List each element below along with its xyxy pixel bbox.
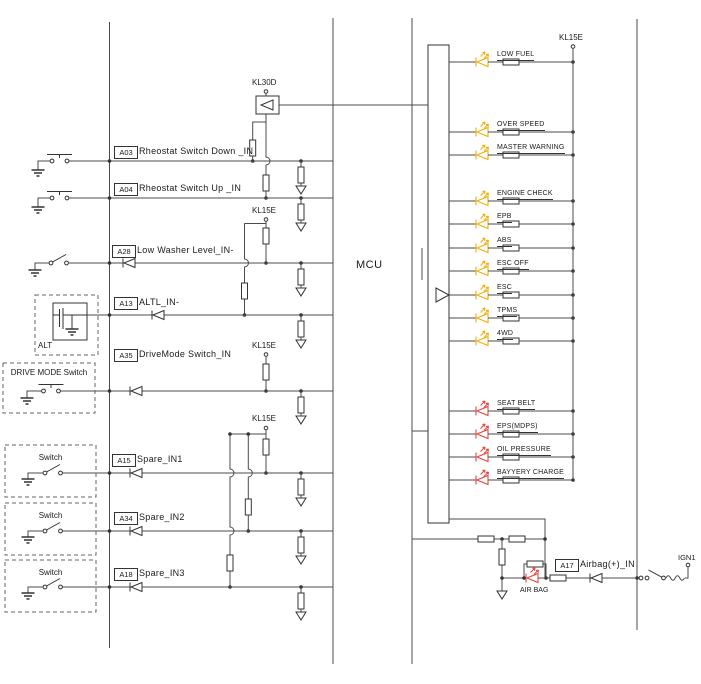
pushbutton-icon — [47, 155, 72, 163]
earth-ground-icon — [29, 270, 42, 276]
resistor — [227, 555, 233, 571]
resistor — [527, 561, 543, 567]
led-icon — [476, 191, 489, 206]
pin-box-a15: A15 — [112, 454, 136, 467]
resistor — [263, 439, 269, 455]
earth-ground-icon — [32, 170, 45, 176]
diode-icon — [123, 259, 135, 268]
ground-arrow-icon — [296, 340, 306, 348]
ign1-tail — [639, 563, 690, 580]
led-icon — [476, 331, 489, 346]
resistor — [298, 269, 304, 285]
pulldowns — [296, 159, 306, 620]
switch-blade-icon — [649, 570, 662, 577]
kl30d-label: KL30D — [252, 78, 276, 87]
toggle-switch-icon — [49, 255, 68, 265]
washer-level-switch — [29, 255, 69, 277]
led-icon — [476, 470, 489, 485]
led-icon — [476, 261, 489, 276]
led-icon — [476, 401, 489, 416]
kl15e-pullup-1 — [242, 218, 270, 317]
pin-box-a34: A34 — [114, 512, 138, 525]
led-icon — [476, 214, 489, 229]
ground-arrow-icon — [296, 556, 306, 564]
pin-label-a15: Spare_IN1 — [137, 453, 183, 466]
schematic-page: MCU KL30D KL15E KL15E KL15E KL15E IGN1 A… — [0, 0, 701, 684]
resistor — [298, 167, 304, 183]
led-icon — [476, 52, 489, 67]
earth-ground-icon — [22, 479, 35, 485]
input-wires — [61, 161, 334, 587]
led-icon — [476, 145, 489, 160]
pin-label-a04: Rheostat Switch Up _IN — [139, 182, 241, 195]
kl30d-terminal — [264, 90, 268, 94]
resistor — [263, 228, 269, 244]
indicator-label: 4WD — [497, 329, 513, 340]
kl15e-pullup-2 — [263, 353, 269, 393]
indicator-label: ESC — [497, 283, 512, 294]
pushbutton-icon — [39, 385, 64, 393]
ground-arrow-icon — [296, 223, 306, 231]
diode-icon — [130, 387, 142, 396]
indicator-label: BAYYERY CHARGE — [497, 468, 564, 479]
resistor — [499, 549, 505, 565]
toggle-switch-icon — [43, 579, 62, 589]
led-icon — [476, 285, 489, 300]
kl30d-circuit — [250, 90, 428, 200]
spare-switch-label: Switch — [5, 511, 96, 520]
diode-icon — [130, 527, 142, 536]
pin-label-a35: DriveMode Switch_IN — [139, 348, 231, 361]
indicator-label: ESC OFF — [497, 259, 529, 270]
drive-mode-label: DRIVE MODE Switch — [4, 368, 94, 377]
indicator-label: EPS(MDPS) — [497, 422, 538, 433]
spare-switch-label: Switch — [5, 453, 96, 462]
pin-box-a28: A28 — [112, 245, 136, 258]
earth-ground-icon — [22, 537, 35, 543]
resistor — [298, 537, 304, 553]
indicator-label: MASTER WARNING — [497, 143, 565, 154]
indicator-label: OVER SPEED — [497, 120, 545, 131]
resistor — [550, 575, 566, 581]
diode-icon — [590, 574, 602, 583]
resistor — [242, 283, 248, 299]
toggle-switch-icon — [43, 523, 62, 533]
pin-box-a13: A13 — [114, 297, 138, 310]
toggle-switch-icon — [43, 465, 62, 475]
indicator-label: SEAT BELT — [497, 399, 535, 410]
led-icon — [476, 238, 489, 253]
resistor — [298, 321, 304, 337]
kl15e-pullup-3 — [227, 426, 269, 589]
indicator-label: TPMS — [497, 306, 517, 317]
led-icon — [476, 424, 489, 439]
kl15e-label: KL15E — [252, 206, 276, 215]
pin-label-a03: Rheostat Switch Down _IN — [139, 145, 253, 158]
pin-label-a17: Airbag(+)_IN — [580, 558, 635, 571]
led-icon — [476, 122, 489, 137]
pin-label-a34: Spare_IN2 — [139, 511, 185, 524]
indicator-label: ABS — [497, 236, 512, 247]
resistor — [509, 536, 525, 542]
ground-arrow-icon — [296, 498, 306, 506]
pin-box-a18: A18 — [114, 568, 138, 581]
diode-icon — [152, 311, 164, 320]
resistor — [298, 593, 304, 609]
pin-box-a35: A35 — [114, 349, 138, 362]
wiring-schematic — [0, 0, 701, 684]
ground-arrow-icon — [296, 416, 306, 424]
led-icon — [476, 308, 489, 323]
indicator-label: EPB — [497, 212, 512, 223]
led-icon — [476, 447, 489, 462]
rheostat-down-switch — [32, 155, 73, 177]
resistor — [478, 536, 494, 542]
resistor — [245, 499, 251, 515]
pin-label-a28: Low Washer Level_IN- — [137, 244, 234, 257]
diode-icon — [130, 583, 142, 592]
airbag-led-icon — [526, 568, 539, 583]
resistor — [298, 479, 304, 495]
kl15e-terminal — [264, 218, 268, 222]
ign1-terminal — [686, 563, 690, 567]
spare-switch-label: Switch — [5, 568, 96, 577]
pin-label-a18: Spare_IN3 — [139, 567, 185, 580]
resistor — [298, 204, 304, 220]
pin-box-a03: A03 — [114, 146, 138, 159]
kl15e-terminal — [264, 426, 268, 430]
airbag-lamp-label: AIR BAG — [520, 586, 548, 595]
kl15e-terminal — [264, 353, 268, 357]
resistor — [298, 397, 304, 413]
kl15e-label: KL15E — [559, 33, 583, 42]
resistor — [263, 175, 269, 191]
resistor — [263, 364, 269, 380]
kl15e-label: KL15E — [252, 341, 276, 350]
ground-arrow-icon — [296, 288, 306, 296]
rheostat-up-switch — [32, 192, 73, 214]
mcu-driver-block — [412, 45, 449, 523]
pushbutton-icon — [47, 192, 72, 200]
ground-arrow-icon — [497, 591, 507, 599]
diode-icon — [130, 469, 142, 478]
alt-label: ALT — [38, 341, 52, 350]
kl15e-label: KL15E — [252, 414, 276, 423]
pin-box-a17: A17 — [555, 559, 579, 572]
mcu-label: MCU — [356, 259, 383, 271]
kl15e-indicator-bus — [571, 45, 575, 480]
earth-ground-icon — [22, 593, 35, 599]
indicator-label: OIL PRESSURE — [497, 445, 551, 456]
indicator-label: LOW FUEL — [497, 50, 534, 61]
ground-arrow-icon — [296, 186, 306, 194]
ground-arrow-icon — [296, 612, 306, 620]
indicator-label: ENGINE CHECK — [497, 189, 553, 200]
pin-label-a13: ALTL_IN- — [139, 296, 179, 309]
buffer-triangle-icon — [436, 288, 449, 302]
earth-ground-icon — [21, 398, 34, 404]
kl15e-terminal — [571, 45, 575, 49]
pin-box-a04: A04 — [114, 183, 138, 196]
earth-ground-icon — [32, 207, 45, 213]
ign1-label: IGN1 — [678, 553, 696, 562]
wire-coil-icon — [666, 567, 688, 580]
